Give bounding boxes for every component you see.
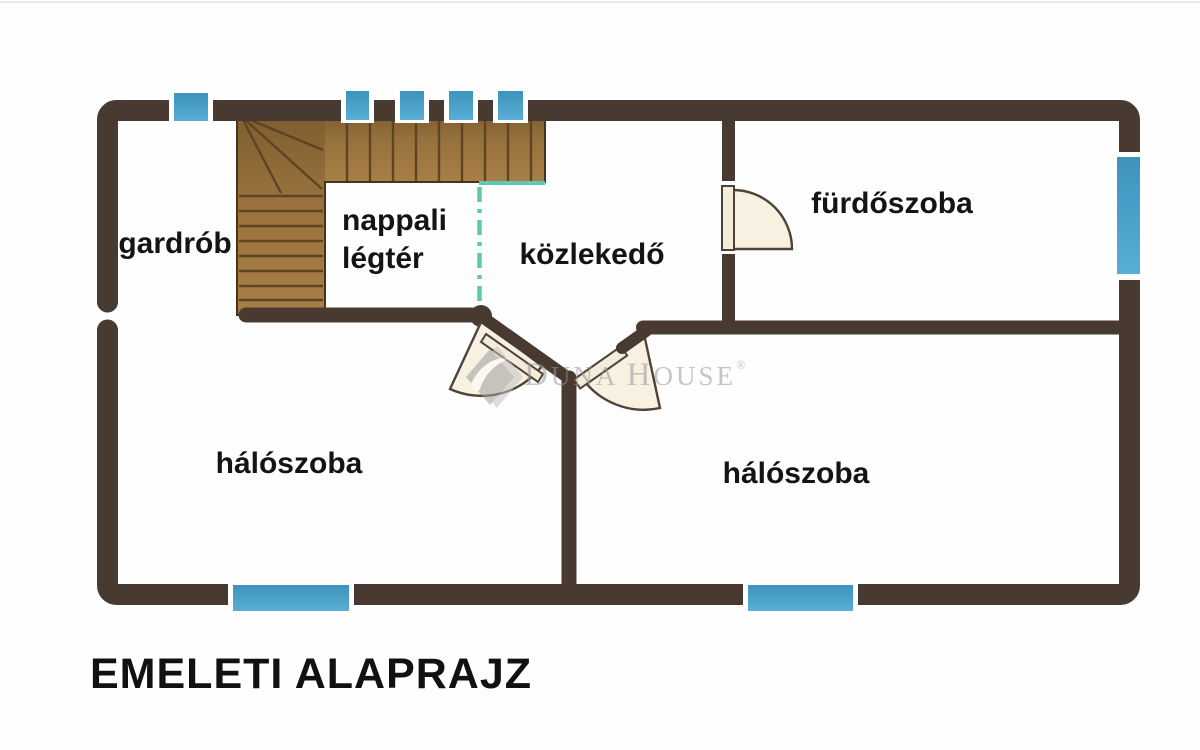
window-stair-3 [444, 88, 478, 123]
window-stair-2 [395, 88, 429, 123]
plan-title: EMELETI ALAPRAJZ [90, 650, 532, 698]
window-top-left [169, 91, 213, 123]
door-leaf [722, 186, 734, 250]
window-bedroom-right [743, 579, 858, 614]
window-stair-4 [493, 88, 528, 123]
watermark-text: DUNA HOUSE® [524, 357, 749, 393]
room-label-furdoszoba: fürdőszoba [811, 187, 973, 220]
room-label-haloszoba-right: hálószoba [723, 457, 870, 490]
window-bedroom-left [228, 579, 354, 614]
screenshot-root: DUNA HOUSE® gardrób nappalilégtér közlek… [0, 0, 1200, 750]
room-label-gardrob: gardrób [118, 227, 231, 260]
room-label-haloszoba-left: hálószoba [216, 447, 363, 480]
room-label-kozlekedo: közlekedő [519, 238, 664, 271]
top-hairline [0, 1, 1200, 3]
floor-plan-svg: DUNA HOUSE® gardrób nappalilégtér közlek… [0, 0, 1200, 750]
window-stair-1 [341, 88, 374, 123]
window-bathroom-right [1111, 152, 1144, 280]
